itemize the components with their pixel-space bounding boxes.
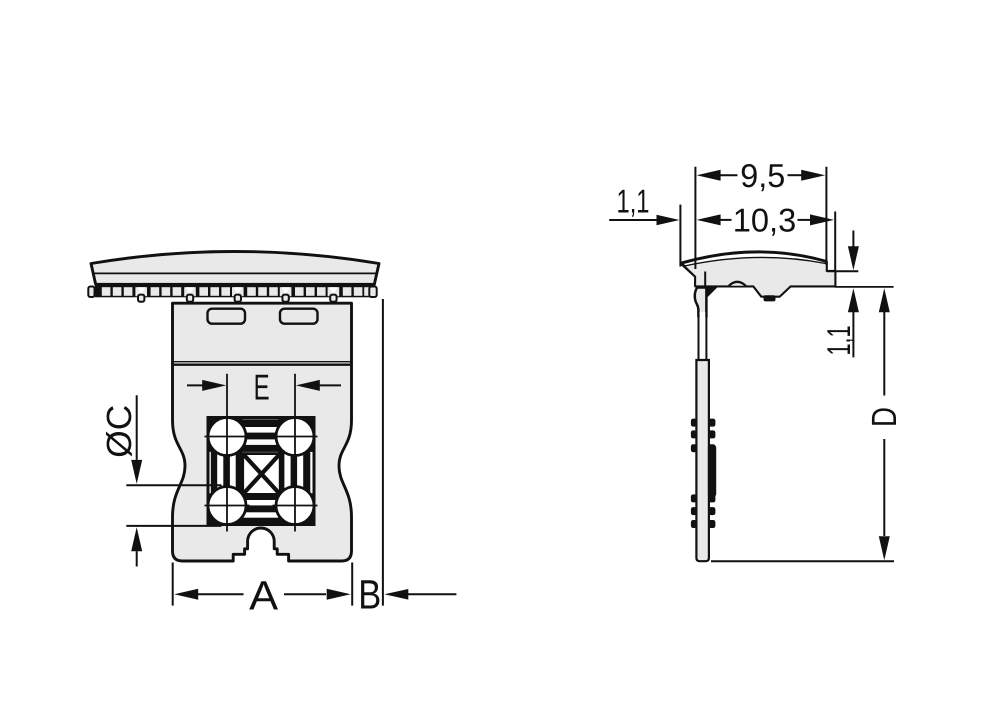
svg-text:D: D xyxy=(865,407,904,427)
svg-text:E: E xyxy=(254,366,270,407)
svg-text:1,1: 1,1 xyxy=(617,183,650,220)
svg-text:9,5: 9,5 xyxy=(740,157,785,194)
svg-text:ØC: ØC xyxy=(100,405,139,458)
svg-text:B: B xyxy=(358,572,381,618)
svg-text:10,3: 10,3 xyxy=(733,202,797,239)
svg-text:1,1: 1,1 xyxy=(820,326,857,356)
svg-text:A: A xyxy=(249,573,279,619)
